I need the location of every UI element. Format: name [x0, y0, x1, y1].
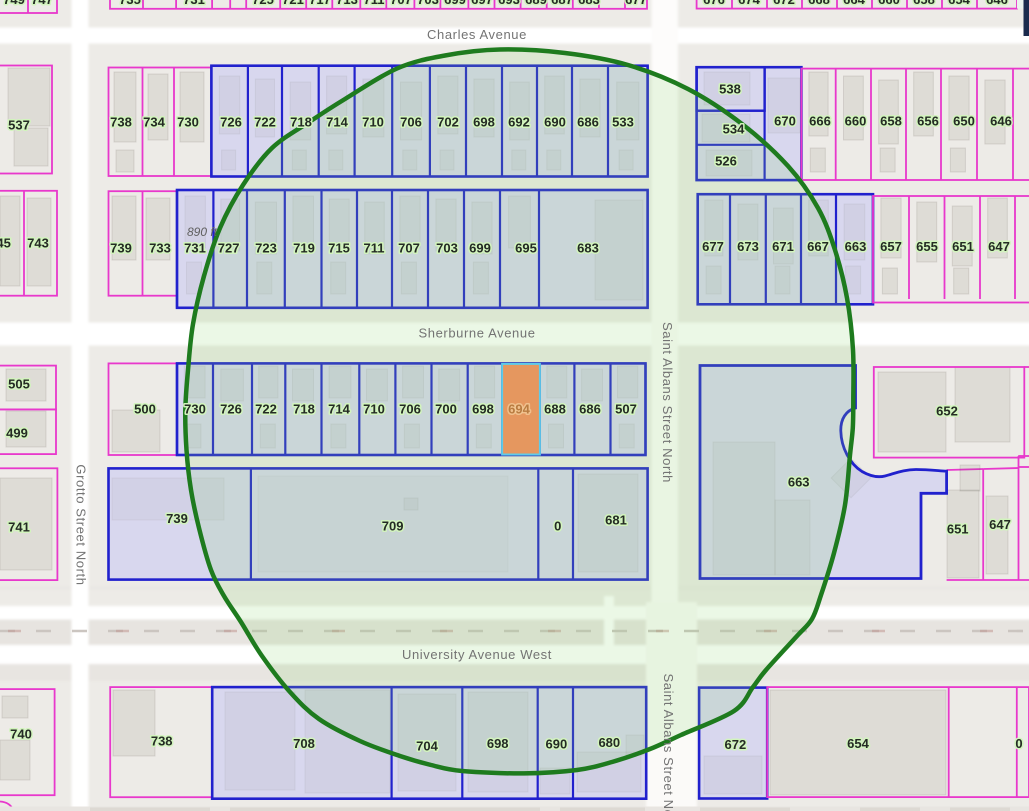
svg-text:710: 710 — [362, 115, 384, 130]
svg-text:714: 714 — [326, 115, 348, 130]
svg-text:657: 657 — [880, 239, 902, 254]
svg-text:711: 711 — [364, 241, 385, 256]
svg-text:537: 537 — [8, 118, 30, 133]
svg-text:0: 0 — [554, 518, 561, 533]
svg-text:745: 745 — [0, 236, 11, 251]
svg-text:686: 686 — [577, 115, 599, 130]
svg-text:718: 718 — [290, 115, 312, 130]
svg-text:714: 714 — [328, 402, 350, 417]
svg-text:654: 654 — [847, 736, 869, 751]
svg-text:500: 500 — [134, 402, 156, 417]
svg-text:Saint Albans Street North: Saint Albans Street North — [660, 322, 675, 483]
svg-text:Grotto Street North: Grotto Street North — [74, 464, 89, 585]
svg-text:672: 672 — [725, 737, 747, 752]
svg-text:671: 671 — [772, 239, 794, 254]
svg-text:733: 733 — [149, 241, 171, 256]
svg-text:739: 739 — [110, 241, 132, 256]
svg-text:721: 721 — [282, 0, 304, 7]
svg-text:650: 650 — [953, 113, 975, 128]
svg-text:676: 676 — [703, 0, 725, 7]
svg-text:747: 747 — [31, 0, 53, 7]
svg-text:673: 673 — [737, 239, 759, 254]
svg-text:668: 668 — [808, 0, 830, 7]
svg-text:717: 717 — [309, 0, 331, 7]
svg-text:505: 505 — [8, 377, 30, 392]
svg-text:693: 693 — [498, 0, 520, 7]
svg-text:722: 722 — [255, 402, 277, 417]
svg-text:711: 711 — [364, 0, 385, 7]
svg-text:713: 713 — [336, 0, 358, 7]
svg-text:Saint Albans Street North: Saint Albans Street North — [661, 674, 676, 811]
svg-text:646: 646 — [986, 0, 1008, 7]
svg-text:683: 683 — [578, 0, 600, 7]
svg-text:University Avenue West: University Avenue West — [402, 647, 552, 662]
svg-text:694: 694 — [508, 402, 530, 417]
svg-text:738: 738 — [110, 115, 132, 130]
svg-text:646: 646 — [990, 113, 1012, 128]
svg-text:538: 538 — [719, 82, 741, 97]
svg-text:730: 730 — [184, 402, 206, 417]
svg-text:533: 533 — [612, 115, 634, 130]
svg-text:727: 727 — [218, 241, 240, 256]
svg-text:739: 739 — [166, 511, 188, 526]
svg-text:651: 651 — [947, 522, 969, 537]
svg-text:890 ft: 890 ft — [187, 225, 218, 239]
svg-text:725: 725 — [252, 0, 274, 7]
svg-text:677: 677 — [702, 239, 724, 254]
svg-text:499: 499 — [6, 426, 28, 441]
svg-text:740: 740 — [10, 726, 32, 741]
svg-text:0: 0 — [1015, 736, 1022, 751]
svg-text:652: 652 — [936, 403, 958, 418]
svg-text:672: 672 — [773, 0, 795, 7]
svg-text:700: 700 — [435, 402, 457, 417]
svg-text:722: 722 — [254, 115, 276, 130]
svg-text:677: 677 — [625, 0, 647, 7]
svg-text:706: 706 — [400, 115, 422, 130]
svg-text:702: 702 — [437, 115, 459, 130]
svg-text:654: 654 — [948, 0, 970, 7]
svg-text:663: 663 — [845, 239, 867, 254]
svg-text:660: 660 — [878, 0, 900, 7]
svg-text:730: 730 — [177, 115, 199, 130]
svg-text:699: 699 — [444, 0, 466, 7]
svg-text:719: 719 — [293, 241, 315, 256]
svg-text:680: 680 — [598, 735, 620, 750]
svg-text:735: 735 — [119, 0, 141, 7]
svg-text:667: 667 — [807, 239, 829, 254]
svg-text:749: 749 — [3, 0, 25, 7]
svg-text:703: 703 — [436, 241, 458, 256]
svg-text:507: 507 — [615, 402, 637, 417]
svg-text:731: 731 — [183, 0, 205, 7]
svg-text:666: 666 — [809, 113, 831, 128]
svg-text:664: 664 — [843, 0, 865, 7]
svg-text:658: 658 — [880, 113, 902, 128]
svg-text:698: 698 — [473, 115, 495, 130]
svg-text:741: 741 — [8, 520, 30, 535]
svg-text:655: 655 — [916, 239, 938, 254]
svg-text:726: 726 — [220, 115, 242, 130]
svg-text:658: 658 — [913, 0, 935, 7]
svg-text:Sherburne Avenue: Sherburne Avenue — [418, 326, 535, 341]
svg-text:707: 707 — [398, 241, 420, 256]
svg-text:663: 663 — [788, 475, 810, 490]
svg-text:704: 704 — [416, 738, 438, 753]
svg-text:706: 706 — [399, 402, 421, 417]
svg-text:698: 698 — [487, 736, 509, 751]
svg-text:731: 731 — [184, 241, 206, 256]
svg-text:715: 715 — [328, 241, 350, 256]
svg-text:656: 656 — [917, 113, 939, 128]
svg-text:526: 526 — [715, 154, 737, 169]
svg-text:683: 683 — [577, 241, 599, 256]
svg-text:670: 670 — [774, 114, 796, 129]
svg-text:726: 726 — [220, 402, 242, 417]
svg-text:681: 681 — [605, 513, 627, 528]
svg-text:689: 689 — [525, 0, 547, 7]
svg-text:708: 708 — [293, 736, 315, 751]
svg-text:647: 647 — [989, 517, 1011, 532]
svg-text:718: 718 — [293, 402, 315, 417]
svg-text:698: 698 — [472, 402, 494, 417]
svg-text:695: 695 — [515, 241, 537, 256]
svg-text:686: 686 — [579, 402, 601, 417]
svg-text:710: 710 — [363, 402, 385, 417]
svg-text:690: 690 — [546, 737, 568, 752]
svg-text:723: 723 — [255, 241, 277, 256]
svg-text:743: 743 — [27, 236, 49, 251]
svg-text:707: 707 — [390, 0, 412, 7]
svg-text:709: 709 — [382, 519, 404, 534]
svg-text:699: 699 — [469, 241, 491, 256]
svg-text:692: 692 — [508, 115, 530, 130]
svg-text:647: 647 — [988, 239, 1010, 254]
svg-text:734: 734 — [143, 115, 165, 130]
svg-text:688: 688 — [544, 402, 566, 417]
svg-text:738: 738 — [151, 733, 173, 748]
svg-text:690: 690 — [544, 115, 566, 130]
svg-text:534: 534 — [723, 122, 745, 137]
svg-text:Charles Avenue: Charles Avenue — [427, 27, 527, 42]
svg-text:674: 674 — [738, 0, 760, 7]
svg-text:703: 703 — [417, 0, 439, 7]
svg-text:687: 687 — [551, 0, 573, 7]
svg-text:651: 651 — [952, 239, 974, 254]
svg-text:660: 660 — [845, 113, 867, 128]
svg-text:697: 697 — [471, 0, 493, 7]
